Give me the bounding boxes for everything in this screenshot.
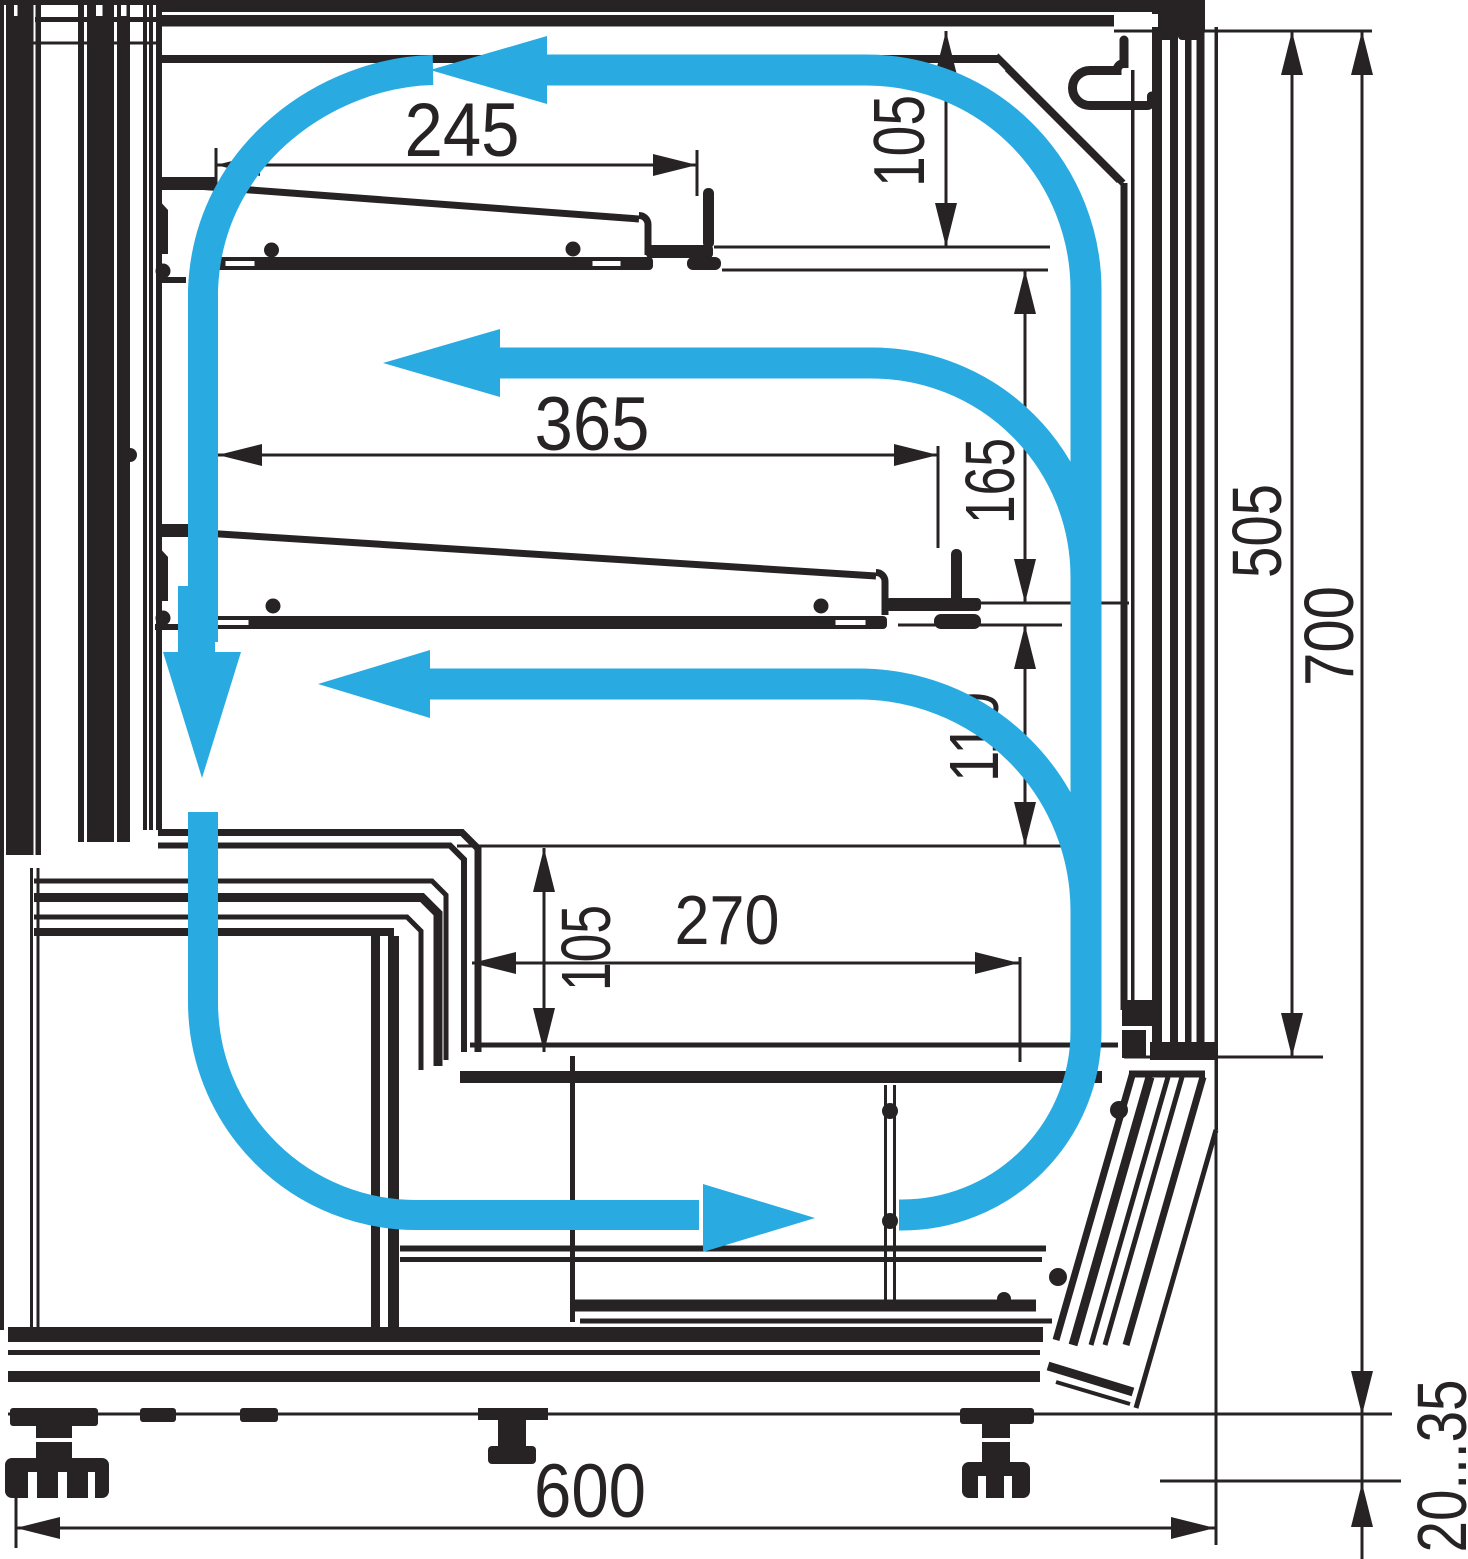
svg-text:600: 600	[534, 1449, 646, 1534]
svg-text:505: 505	[1218, 484, 1296, 578]
svg-text:165: 165	[951, 438, 1029, 524]
svg-text:270: 270	[675, 881, 780, 959]
svg-text:700: 700	[1290, 586, 1368, 686]
svg-text:245: 245	[405, 88, 520, 173]
svg-text:105: 105	[547, 905, 625, 991]
svg-text:365: 365	[535, 382, 650, 467]
svg-text:20...35: 20...35	[1403, 1380, 1468, 1553]
svg-text:105: 105	[860, 95, 940, 187]
